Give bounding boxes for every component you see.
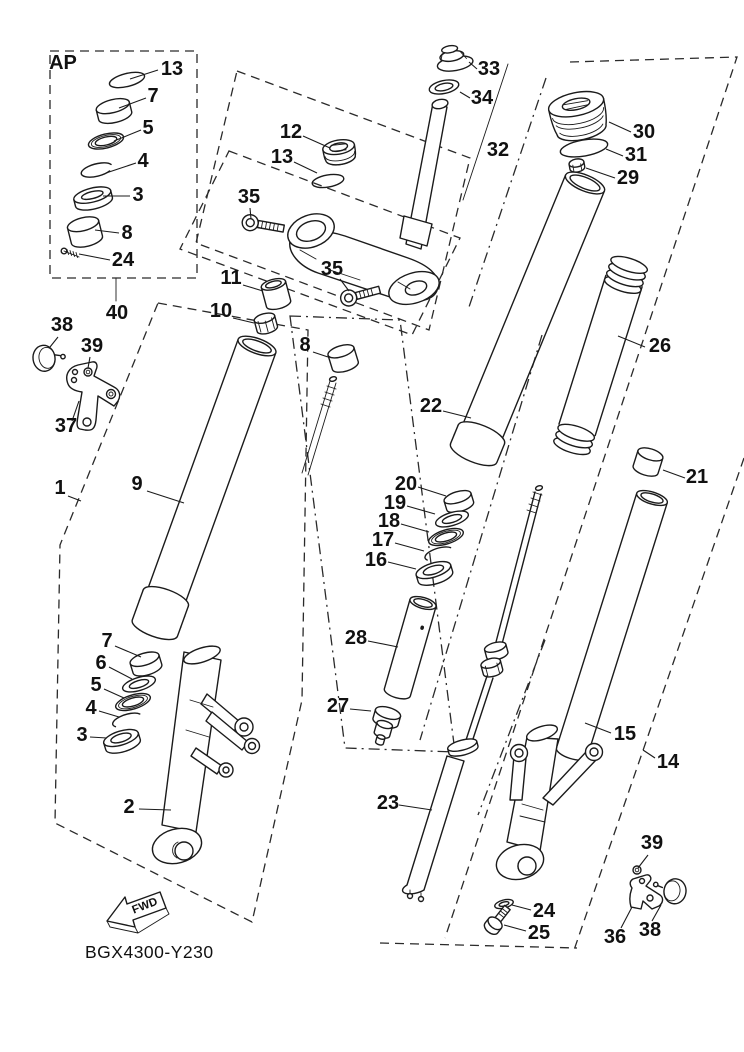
leader-line-n31 <box>606 149 623 156</box>
part-16-dust-seal <box>414 558 455 589</box>
part-30-cap-bolt <box>546 87 611 145</box>
part-39-nut-left <box>84 368 92 376</box>
leader-line-n38a <box>50 337 58 347</box>
part-33-cap <box>434 42 474 73</box>
part-35-bolt-upper <box>241 213 285 236</box>
part-label-n7b: 7 <box>101 630 112 652</box>
leader-line-n9 <box>147 491 184 503</box>
part-3-dust-seal <box>102 726 143 757</box>
part-12-cap-bolt <box>322 137 358 167</box>
part-label-n33: 33 <box>478 58 500 80</box>
part-label-ap24: 24 <box>112 249 135 271</box>
part-label-n30: 30 <box>633 121 655 143</box>
inner-group-line-1 <box>468 78 546 310</box>
leader-line-ap24 <box>79 254 110 260</box>
part-8-bushing <box>326 342 359 375</box>
part-label-n32: 32 <box>487 139 509 161</box>
leader-line-n28 <box>368 641 398 647</box>
part-9-outer-tube <box>129 331 282 644</box>
leader-line-n19 <box>407 506 435 514</box>
part-label-n23: 23 <box>377 792 399 814</box>
part-8-bushing-inset <box>66 214 104 250</box>
part-label-ap7: 7 <box>147 85 158 107</box>
part-label-n29: 29 <box>617 167 639 189</box>
part-label-n38a: 38 <box>51 314 73 336</box>
part-label-n26: 26 <box>649 335 671 357</box>
part-label-n25: 25 <box>528 922 550 944</box>
part-32-bracket-line <box>463 64 508 200</box>
part-15-inner-tube <box>555 487 669 763</box>
part-38-reflector-left <box>31 342 67 372</box>
part-label-n6: 6 <box>95 652 106 674</box>
part-label-n14: 14 <box>657 751 680 773</box>
part-label-n2: 2 <box>123 796 134 818</box>
part-label-n12: 12 <box>280 121 302 143</box>
part-label-n24b: 24 <box>533 900 556 922</box>
part-24-screw-inset <box>61 248 79 257</box>
part-label-ap4: 4 <box>137 150 149 172</box>
part-7-bushing-inset <box>95 96 134 127</box>
leader-line-n21 <box>663 470 685 478</box>
part-4-clip-inset <box>80 160 113 180</box>
leader-line-n13b <box>294 162 317 173</box>
assembly-14-boundary <box>574 458 744 950</box>
part-label-n39a: 39 <box>81 335 103 357</box>
leader-line-n4b <box>99 711 119 717</box>
part-17-clip <box>423 545 452 561</box>
part-label-n3b: 3 <box>76 724 87 746</box>
part-label-n27: 27 <box>327 695 349 717</box>
part-29-nut <box>568 158 585 173</box>
leader-line-n3b <box>90 737 107 738</box>
exploded-parts-diagram: FWD 137543824401213353533343230312926383… <box>0 0 744 1052</box>
part-label-n28: 28 <box>345 627 367 649</box>
part-39-nut-right <box>633 866 641 874</box>
part-31-oring <box>559 136 609 160</box>
part-label-n37: 37 <box>55 415 77 437</box>
part-2-lower-casting <box>148 642 259 868</box>
part-label-n35a: 35 <box>238 186 260 208</box>
leader-line-n7b <box>115 646 141 657</box>
leader-line-n24b <box>512 905 531 910</box>
part-27-valve <box>366 704 402 748</box>
part-label-n1: 1 <box>54 477 65 499</box>
leader-line-n18 <box>401 524 429 532</box>
part-label-n9: 9 <box>131 473 142 495</box>
part-label-ap13: 13 <box>161 58 183 80</box>
fwd-arrow: FWD <box>107 892 169 933</box>
part-21-cap <box>632 445 665 479</box>
leader-line-n14 <box>643 750 655 758</box>
part-18-oil-seal <box>427 525 466 549</box>
part-label-n5b: 5 <box>90 674 101 696</box>
leader-line-n16 <box>388 562 416 569</box>
part-label-ap8: 8 <box>121 222 132 244</box>
leader-line-n26 <box>618 336 645 347</box>
part-label-n31: 31 <box>625 144 647 166</box>
part-3-dust-seal-inset <box>72 184 114 214</box>
part-label-n34: 34 <box>471 87 494 109</box>
leader-line-n36 <box>621 907 632 928</box>
part-5-seal-inset <box>87 130 125 152</box>
leader-line-n39b <box>638 855 648 868</box>
part-label-n21: 21 <box>686 466 708 488</box>
part-label-n8b: 8 <box>299 334 310 356</box>
part-label-n38b: 38 <box>639 919 661 941</box>
part-13-oring-crown <box>311 172 345 189</box>
part-label-n11: 11 <box>220 267 241 289</box>
part-label-n39b: 39 <box>641 832 663 854</box>
part-label-n22: 22 <box>420 395 442 417</box>
part-label-n17: 17 <box>372 529 394 551</box>
leader-line-n34 <box>460 92 470 98</box>
diagram-code: BGX4300-Y230 <box>85 942 214 962</box>
leader-line-n27 <box>350 709 371 711</box>
leader-line-n12 <box>303 136 330 148</box>
part-label-n16: 16 <box>365 549 387 571</box>
leader-line-n11 <box>243 285 263 291</box>
leader-line-n17 <box>395 543 424 551</box>
part-label-ap5: 5 <box>142 117 153 139</box>
part-label-n35b: 35 <box>321 258 343 280</box>
ap-inset-title: AP <box>49 52 77 74</box>
part-5-oil-seal <box>114 690 153 714</box>
part-36-bracket <box>630 875 663 909</box>
leader-line-n6 <box>109 667 132 679</box>
leader-line-n10 <box>233 318 254 323</box>
part-11-collar <box>260 276 292 311</box>
part-28-damper-tube <box>383 594 438 701</box>
leader-line-n25 <box>504 925 526 931</box>
part-label-n10: 10 <box>210 300 232 322</box>
leader-line-n8b <box>313 352 328 357</box>
leader-line-n23 <box>399 805 432 810</box>
part-22-outer-tube <box>447 166 611 471</box>
leader-line-n30 <box>609 122 631 132</box>
part-label-n40: 40 <box>106 302 128 324</box>
part-label-n15: 15 <box>614 723 636 745</box>
parts-diagram-page: FWD 137543824401213353533343230312926383… <box>0 0 744 1052</box>
part-4-clip <box>111 711 141 728</box>
part-13-oring-inset <box>108 69 146 90</box>
part-10-nut <box>253 311 278 336</box>
part-34-bearing-race <box>428 78 460 97</box>
part-label-n13b: 13 <box>271 146 293 168</box>
part-number-labels: 1375438244012133535333432303129263839371… <box>51 58 708 948</box>
leader-line-n5b <box>104 689 124 698</box>
part-label-n36: 36 <box>604 926 626 948</box>
part-label-n4b: 4 <box>85 697 97 719</box>
part-label-ap3: 3 <box>132 184 143 206</box>
